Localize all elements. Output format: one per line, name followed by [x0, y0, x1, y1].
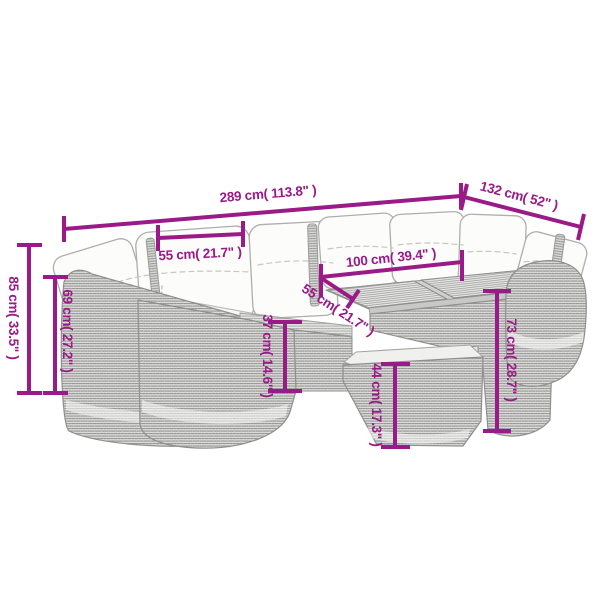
dim-back-height-line	[17, 245, 42, 393]
dim-label-back-height: 85 cm( 33.5" )	[6, 276, 20, 359]
dimension-diagram: 289 cm( 113.8" ) 132 cm( 52" ) 55 cm( 21…	[0, 0, 600, 600]
dim-label-table-height: 73 cm( 28.7" )	[504, 318, 518, 401]
furniture-sketch	[0, 0, 600, 600]
dim-label-ottoman-height: 44 cm( 17.3" )	[369, 363, 383, 446]
dim-label-seat-height: 37 cm( 14.6" )	[260, 314, 274, 397]
dim-label-arm-height: 69 cm( 27.2" )	[60, 289, 74, 372]
